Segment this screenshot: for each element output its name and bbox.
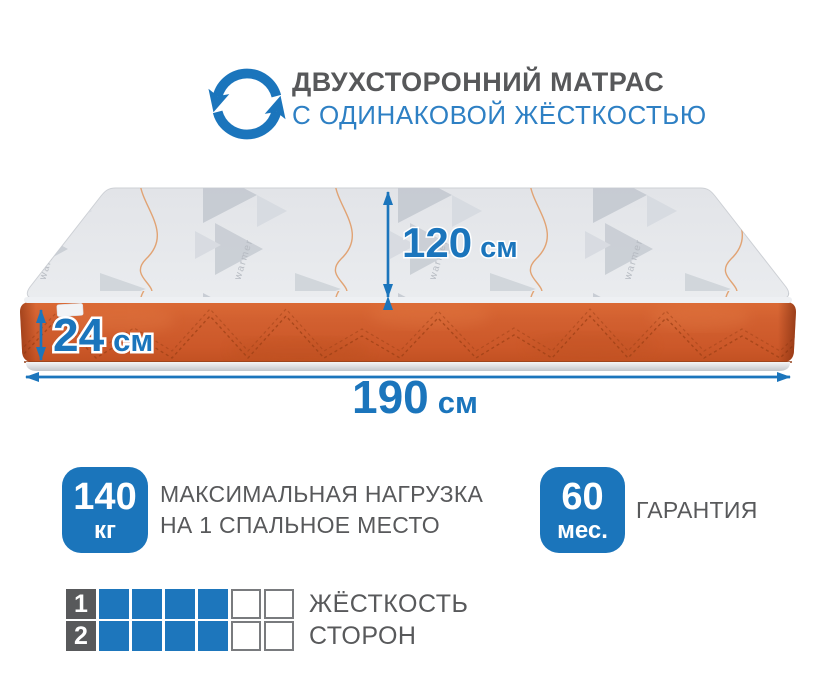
hardness-cell-filled bbox=[198, 589, 228, 619]
hardness-scale: 1 ЖЁСТКОСТЬ 2 СТОРОН bbox=[66, 589, 468, 651]
header: ДВУХСТОРОННИЙ МАТРАС С ОДИНАКОВОЙ ЖЁСТКО… bbox=[292, 66, 707, 130]
page-title: ДВУХСТОРОННИЙ МАТРАС bbox=[292, 66, 707, 98]
max-load-unit: кг bbox=[94, 519, 116, 543]
rotate-arrows-icon bbox=[196, 58, 298, 150]
warranty-label-line1: ГАРАНТИЯ bbox=[636, 495, 758, 526]
hardness-row-2: 2 СТОРОН bbox=[66, 621, 468, 651]
hardness-row-number: 2 bbox=[66, 621, 96, 651]
hardness-cell-empty bbox=[264, 621, 294, 651]
dimension-length: 190см bbox=[26, 371, 790, 423]
warranty-badge: 60 мес. bbox=[540, 467, 625, 553]
hardness-cell-filled bbox=[132, 621, 162, 651]
hardness-cell-filled bbox=[165, 621, 195, 651]
page-subtitle: С ОДИНАКОВОЙ ЖЁСТКОСТЬЮ bbox=[292, 100, 707, 130]
rotate-arrow-top bbox=[218, 73, 277, 96]
hardness-row-number: 1 bbox=[66, 589, 96, 619]
max-load-badge: 140 кг bbox=[62, 467, 148, 553]
hardness-cells-row-2 bbox=[99, 621, 294, 651]
hardness-row-1: 1 ЖЁСТКОСТЬ bbox=[66, 589, 468, 619]
warranty-label: ГАРАНТИЯ bbox=[636, 467, 758, 553]
hardness-label-line1: ЖЁСТКОСТЬ bbox=[309, 590, 468, 619]
max-load-label-line2: НА 1 СПАЛЬНОЕ МЕСТО bbox=[160, 510, 483, 541]
hardness-cell-filled bbox=[99, 621, 129, 651]
max-load-label: МАКСИМАЛЬНАЯ НАГРУЗКА НА 1 СПАЛЬНОЕ МЕСТ… bbox=[160, 467, 483, 553]
hardness-cell-filled bbox=[99, 589, 129, 619]
hardness-cell-empty bbox=[231, 621, 261, 651]
hardness-cell-empty bbox=[264, 589, 294, 619]
hardness-cells-row-1 bbox=[99, 589, 294, 619]
warranty-unit: мес. bbox=[557, 519, 608, 543]
bottom-piping bbox=[26, 362, 790, 371]
hardness-cell-empty bbox=[231, 589, 261, 619]
dimension-length-label: 190см bbox=[352, 371, 478, 423]
hardness-cell-filled bbox=[198, 621, 228, 651]
rotate-arrow-bottom bbox=[218, 112, 277, 135]
warranty-value: 60 bbox=[561, 478, 603, 516]
mattress-illustration: warmer bbox=[0, 165, 816, 427]
max-load-value: 140 bbox=[73, 478, 136, 516]
mattress-infographic: ДВУХСТОРОННИЙ МАТРАС С ОДИНАКОВОЙ ЖЁСТКО… bbox=[0, 0, 816, 700]
hardness-cell-filled bbox=[132, 589, 162, 619]
hardness-label-line2: СТОРОН bbox=[309, 622, 416, 651]
hardness-cell-filled bbox=[165, 589, 195, 619]
max-load-label-line1: МАКСИМАЛЬНАЯ НАГРУЗКА bbox=[160, 479, 483, 510]
